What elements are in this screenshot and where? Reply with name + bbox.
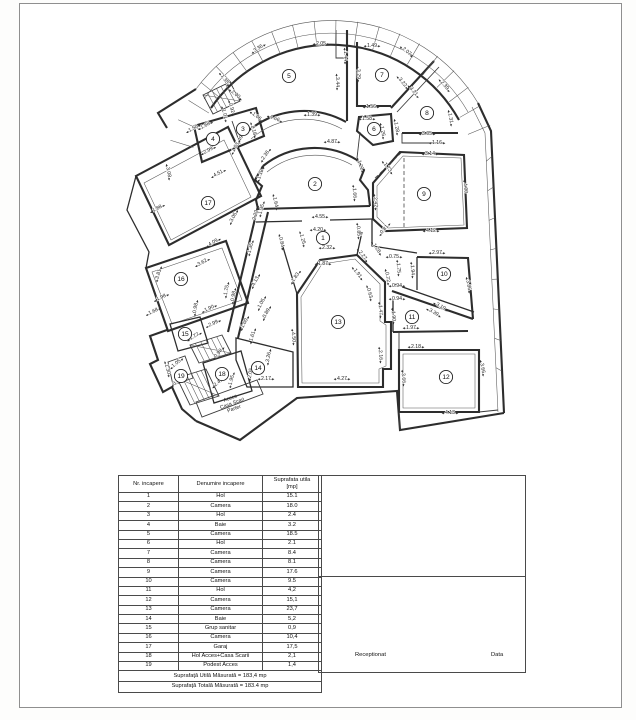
- dimension-label: 4.51: [210, 167, 227, 180]
- cell-nr: 10: [119, 577, 179, 586]
- cell-denumire: Camera: [179, 530, 263, 539]
- svg-text:1.05: 1.05: [257, 297, 267, 309]
- cell-nr: 16: [119, 633, 179, 642]
- dimension-label: 1.88: [149, 202, 166, 215]
- room-number: 5: [282, 69, 295, 82]
- svg-text:11: 11: [409, 314, 416, 321]
- cell-nr: 17: [119, 643, 179, 652]
- cell-suprafata: 4,2: [263, 586, 322, 595]
- svg-text:10: 10: [440, 271, 448, 278]
- room-number: 13: [331, 315, 344, 328]
- svg-text:1.25: 1.25: [298, 234, 306, 245]
- dimension-label: 3.44: [334, 74, 341, 90]
- cell-denumire: Hol: [179, 539, 263, 548]
- cell-denumire: Grup sanitar: [179, 624, 263, 633]
- room-number: 11: [405, 310, 418, 323]
- svg-text:1.75: 1.75: [223, 285, 231, 296]
- svg-text:1.35: 1.35: [247, 242, 255, 253]
- table-row: 1Hol15.1: [119, 493, 322, 502]
- dimension-label: 0.98: [191, 300, 200, 317]
- dimension-label: 4.27: [334, 376, 350, 382]
- cell-suprafata: 8.4: [263, 549, 322, 558]
- cell-denumire: Camera: [179, 596, 263, 605]
- svg-text:4.12: 4.12: [426, 228, 436, 234]
- svg-text:0.98: 0.98: [192, 303, 200, 314]
- data-label: Data: [491, 652, 503, 658]
- table-row: 9Camera17.6: [119, 568, 322, 577]
- table-row: 17Garaj17,5: [119, 643, 322, 652]
- dimension-label: 4.55: [312, 214, 328, 220]
- cell-nr: 14: [119, 615, 179, 624]
- svg-text:4.55: 4.55: [315, 214, 325, 220]
- svg-text:2.99: 2.99: [203, 146, 215, 156]
- svg-text:1.39: 1.39: [307, 112, 317, 118]
- cell-denumire: Podest Acces: [179, 662, 263, 671]
- dimension-label: 4.87: [324, 139, 340, 145]
- dimension-label: 3.08: [164, 164, 173, 181]
- cell-nr: 2: [119, 502, 179, 511]
- sign-off-box: Receptionat Data: [318, 475, 526, 673]
- svg-text:3.81: 3.81: [154, 268, 163, 280]
- cell-suprafata: 17.6: [263, 568, 322, 577]
- svg-text:1.49: 1.49: [367, 43, 377, 49]
- svg-text:9: 9: [422, 191, 426, 198]
- staircase-label: AccesCasa ScariParter: [217, 391, 247, 416]
- room-number: 4: [206, 132, 219, 145]
- dimension-label: 3.62: [194, 256, 211, 269]
- cell-nr: 11: [119, 586, 179, 595]
- svg-text:2.42: 2.42: [372, 197, 379, 208]
- svg-text:0.94: 0.94: [392, 283, 402, 289]
- svg-text:1.18: 1.18: [256, 168, 265, 180]
- svg-text:0.63: 0.63: [365, 288, 373, 299]
- svg-text:4.51: 4.51: [213, 169, 225, 179]
- cell-nr: 9: [119, 568, 179, 577]
- svg-text:3.05: 3.05: [422, 131, 432, 137]
- svg-text:0.92: 0.92: [227, 103, 235, 114]
- cell-suprafata: 2.1: [263, 539, 322, 548]
- dimension-label: 1.75: [395, 260, 402, 276]
- cell-denumire: Garaj: [179, 643, 263, 652]
- svg-text:3.26: 3.26: [265, 352, 273, 363]
- room-table-header: Nr. incapere Denumire incapere Suprafata…: [119, 476, 322, 493]
- svg-text:2.05: 2.05: [316, 41, 326, 47]
- table-row: 11Hol4,2: [119, 586, 322, 595]
- cell-denumire: Baie: [179, 521, 263, 530]
- svg-text:4: 4: [211, 136, 215, 143]
- svg-text:1.21: 1.21: [356, 159, 365, 171]
- table-row: 10Camera9.5: [119, 577, 322, 586]
- table-row: 14Baie5,2: [119, 615, 322, 624]
- cell-denumire: Hol: [179, 511, 263, 520]
- cell-suprafata: 15,1: [263, 596, 322, 605]
- dimension-labels-layer: 3.362.051.492.071.443.443.291.352.001.39…: [145, 41, 487, 416]
- svg-text:1.61: 1.61: [248, 330, 257, 342]
- svg-text:3.08: 3.08: [164, 167, 172, 178]
- svg-text:4.87: 4.87: [327, 139, 337, 145]
- table-row: 16Camera10,4: [119, 633, 322, 642]
- cell-suprafata: 2,1: [263, 652, 322, 661]
- svg-text:0.85: 0.85: [355, 226, 362, 237]
- cell-nr: 4: [119, 521, 179, 530]
- cell-suprafata: 17,5: [263, 643, 322, 652]
- svg-text:0.84: 0.84: [277, 237, 285, 248]
- table-row: 5Camera18.5: [119, 530, 322, 539]
- table-row: 7Camera8.4: [119, 549, 322, 558]
- svg-text:1.90: 1.90: [203, 304, 215, 314]
- svg-text:2.32: 2.32: [322, 245, 332, 251]
- cell-nr: 3: [119, 511, 179, 520]
- svg-text:1.75: 1.75: [395, 263, 402, 274]
- dimension-label: 2.99: [205, 318, 222, 330]
- scanned-sheet: 3.362.051.492.071.443.443.291.352.001.39…: [0, 0, 636, 720]
- dimension-label: 1.94: [409, 262, 416, 278]
- staircase-label-text: AccesCasa ScariParter: [217, 391, 247, 416]
- svg-text:1.88: 1.88: [152, 204, 164, 214]
- table-row: 13Camera23,7: [119, 605, 322, 614]
- dimension-label: 2.17: [258, 376, 274, 382]
- svg-text:1.44: 1.44: [342, 51, 348, 61]
- svg-text:2.17: 2.17: [261, 376, 271, 382]
- cell-denumire: Camera: [179, 502, 263, 511]
- svg-text:3.39: 3.39: [428, 308, 440, 318]
- svg-text:3.36: 3.36: [253, 43, 265, 54]
- receptionat-label: Receptionat: [355, 652, 386, 658]
- svg-text:1.58: 1.58: [362, 116, 372, 122]
- dimension-label: 1.49: [364, 43, 380, 49]
- dimension-label: 1.25: [297, 231, 307, 248]
- svg-text:14: 14: [254, 365, 262, 372]
- svg-text:2.99: 2.99: [207, 319, 219, 329]
- room-number: 3: [236, 122, 249, 135]
- cell-nr: 1: [119, 493, 179, 502]
- cell-suprafata: 2.4: [263, 511, 322, 520]
- svg-text:7: 7: [380, 72, 384, 79]
- dimension-label: 0.63: [364, 285, 374, 302]
- cell-nr: 8: [119, 558, 179, 567]
- footer-utila: Suprafaţă Utilă Măsurată = 183,4 mp: [119, 671, 322, 682]
- table-row: 8Camera8.1: [119, 558, 322, 567]
- room-number: 10: [437, 267, 450, 280]
- svg-text:4.00: 4.00: [462, 183, 469, 194]
- svg-text:2.16: 2.16: [377, 350, 384, 361]
- dimension-label: 0.84: [277, 234, 286, 251]
- svg-text:1.95: 1.95: [228, 374, 236, 385]
- dimension-label: 2.00: [227, 87, 243, 102]
- svg-text:3.22: 3.22: [397, 77, 408, 89]
- dimension-label: 2.99: [200, 144, 217, 157]
- cell-suprafata: 18.0: [263, 502, 322, 511]
- svg-text:16: 16: [177, 276, 185, 283]
- svg-text:1.30: 1.30: [163, 364, 171, 375]
- header-suprafata-line2: [mp]: [263, 484, 321, 491]
- cell-nr: 18: [119, 652, 179, 661]
- svg-text:1.90: 1.90: [390, 311, 397, 322]
- cell-denumire: Hol Acces+Casa Scarii: [179, 652, 263, 661]
- dimension-label: 2.32: [319, 245, 335, 251]
- svg-text:2: 2: [313, 181, 317, 188]
- svg-text:3.44: 3.44: [334, 77, 340, 87]
- dimension-label: 0.75: [386, 254, 402, 260]
- svg-text:1.47: 1.47: [377, 305, 384, 316]
- dimension-label: 3.26: [264, 349, 273, 366]
- cell-suprafata: 9.5: [263, 577, 322, 586]
- cell-suprafata: 15.1: [263, 493, 322, 502]
- svg-text:15: 15: [181, 331, 189, 338]
- dimension-label: 4.13: [249, 273, 262, 290]
- dimension-label: 1.61: [247, 328, 258, 345]
- cell-nr: 5: [119, 530, 179, 539]
- svg-text:1.56: 1.56: [366, 104, 376, 110]
- svg-text:8: 8: [425, 110, 429, 117]
- room-number: 9: [417, 187, 430, 200]
- svg-text:1.87: 1.87: [318, 261, 328, 267]
- cell-nr: 12: [119, 596, 179, 605]
- dimension-label: 1.47: [377, 302, 384, 318]
- cell-nr: 15: [119, 624, 179, 633]
- cell-denumire: Camera: [179, 605, 263, 614]
- dimension-label: 0.94: [389, 283, 405, 289]
- header-suprafata-line1: Suprafata utila: [263, 477, 321, 484]
- cell-suprafata: 18.5: [263, 530, 322, 539]
- cell-suprafata: 0,9: [263, 624, 322, 633]
- svg-text:4.50: 4.50: [290, 332, 297, 343]
- header-denumire: Denumire incapere: [179, 476, 263, 493]
- svg-text:3.21: 3.21: [408, 86, 419, 98]
- room-table-footer: Suprafaţă Utilă Măsurată = 183,4 mp Supr…: [119, 671, 322, 692]
- svg-text:1.66: 1.66: [351, 188, 358, 199]
- cell-denumire: Baie: [179, 615, 263, 624]
- dimension-label: 1.97: [403, 325, 419, 331]
- svg-text:2.97: 2.97: [432, 250, 442, 256]
- svg-text:1.31: 1.31: [446, 113, 454, 124]
- cell-denumire: Camera: [179, 633, 263, 642]
- room-table: Nr. incapere Denumire incapere Suprafata…: [118, 475, 322, 693]
- cell-suprafata: 1,4: [263, 662, 322, 671]
- dimension-label: 1.01: [219, 106, 229, 123]
- dimension-label: 2.97: [429, 250, 445, 256]
- cell-nr: 19: [119, 662, 179, 671]
- sign-box-divider: [319, 576, 525, 577]
- room-number: 1: [316, 231, 329, 244]
- cell-denumire: Camera: [179, 577, 263, 586]
- dimension-label: 2.07: [398, 44, 414, 59]
- svg-text:1.16: 1.16: [432, 140, 442, 146]
- svg-text:3.86: 3.86: [464, 280, 472, 291]
- table-row: 6Hol2.1: [119, 539, 322, 548]
- room-number: 19: [174, 369, 187, 382]
- svg-text:1.60: 1.60: [240, 317, 250, 329]
- table-row: 2Camera18.0: [119, 502, 322, 511]
- room-number: 15: [178, 327, 191, 340]
- cell-suprafata: 3.2: [263, 521, 322, 530]
- room-number: 14: [251, 361, 264, 374]
- dimension-label: 1.91: [350, 265, 365, 281]
- svg-text:1.64: 1.64: [271, 197, 279, 208]
- svg-text:4.27: 4.27: [337, 376, 347, 382]
- svg-text:3.29: 3.29: [355, 69, 361, 79]
- cell-suprafata: 8.1: [263, 558, 322, 567]
- room-number: 6: [367, 122, 380, 135]
- svg-text:4.13: 4.13: [445, 410, 455, 416]
- room-number: 8: [420, 106, 433, 119]
- svg-text:1.68: 1.68: [147, 307, 159, 317]
- svg-text:3: 3: [241, 126, 245, 133]
- table-row: 12Camera15,1: [119, 596, 322, 605]
- cell-nr: 6: [119, 539, 179, 548]
- dimension-label: 3.66: [400, 370, 407, 386]
- cell-denumire: Camera: [179, 549, 263, 558]
- table-row: 18Hol Acces+Casa Scarii2,1: [119, 652, 322, 661]
- room-number: 16: [174, 272, 187, 285]
- cell-suprafata: 23,7: [263, 605, 322, 614]
- cell-suprafata: 10,4: [263, 633, 322, 642]
- svg-text:0.75: 0.75: [389, 254, 399, 260]
- room-table-body: 1Hol15.12Camera18.03Hol2.44Baie3.25Camer…: [119, 493, 322, 671]
- svg-text:3.62: 3.62: [197, 258, 209, 268]
- dimension-label: 2.18: [408, 344, 424, 350]
- header-suprafata: Suprafata utila [mp]: [263, 476, 322, 493]
- table-row: 3Hol2.4: [119, 511, 322, 520]
- svg-text:2.18: 2.18: [411, 344, 421, 350]
- cell-nr: 7: [119, 549, 179, 558]
- svg-text:3.14: 3.14: [425, 151, 435, 157]
- footer-totala: Suprafaţă Totală Măsurată = 183.4 mp: [119, 682, 322, 693]
- dimension-label: 0.94: [389, 296, 405, 302]
- svg-text:0.94: 0.94: [392, 296, 402, 302]
- svg-text:1.98: 1.98: [155, 293, 167, 303]
- svg-text:13: 13: [334, 319, 342, 326]
- room-number: 18: [215, 367, 228, 380]
- dimension-label: 3.29: [355, 66, 362, 82]
- cell-denumire: Camera: [179, 558, 263, 567]
- cell-nr: 13: [119, 605, 179, 614]
- svg-text:3.66: 3.66: [400, 373, 407, 384]
- dimension-label: 3.21: [406, 83, 421, 99]
- table-row: 19Podest Acces1,4: [119, 662, 322, 671]
- svg-text:1.05: 1.05: [171, 358, 183, 369]
- dimension-label: 3.22: [395, 74, 410, 90]
- svg-text:1.28: 1.28: [371, 243, 382, 255]
- cell-denumire: Hol: [179, 493, 263, 502]
- room-number: 17: [201, 196, 214, 209]
- svg-text:2.36: 2.36: [260, 150, 271, 162]
- svg-text:1.94: 1.94: [409, 265, 416, 276]
- room-number: 2: [308, 177, 321, 190]
- svg-text:1.97: 1.97: [406, 325, 416, 331]
- svg-text:2.39: 2.39: [439, 80, 450, 92]
- table-row: 4Baie3.2: [119, 521, 322, 530]
- room-number: 7: [375, 68, 388, 81]
- table-row: 15Grup sanitar0,9: [119, 624, 322, 633]
- room-number: 12: [439, 370, 452, 383]
- svg-text:1.18: 1.18: [249, 125, 257, 136]
- svg-text:1: 1: [321, 235, 325, 242]
- cell-suprafata: 5,2: [263, 615, 322, 624]
- svg-text:17: 17: [204, 200, 212, 207]
- svg-text:0.89: 0.89: [262, 307, 272, 319]
- dimension-label: 4.50: [290, 329, 297, 345]
- dimension-label: 2.16: [377, 347, 384, 363]
- svg-text:1.83: 1.83: [290, 272, 301, 284]
- svg-text:1.28: 1.28: [392, 122, 400, 133]
- svg-text:18: 18: [218, 371, 226, 378]
- header-nr: Nr. incapere: [119, 476, 179, 493]
- dimension-label: 1.66: [351, 185, 358, 201]
- cell-denumire: Camera: [179, 568, 263, 577]
- svg-text:1.91: 1.91: [352, 268, 363, 280]
- svg-text:12: 12: [442, 374, 450, 381]
- svg-text:5: 5: [287, 73, 291, 80]
- cell-denumire: Hol: [179, 586, 263, 595]
- svg-text:6: 6: [372, 126, 376, 133]
- svg-text:1.35: 1.35: [258, 203, 266, 214]
- svg-text:19: 19: [177, 373, 185, 380]
- dimension-label: 1.87: [315, 261, 331, 267]
